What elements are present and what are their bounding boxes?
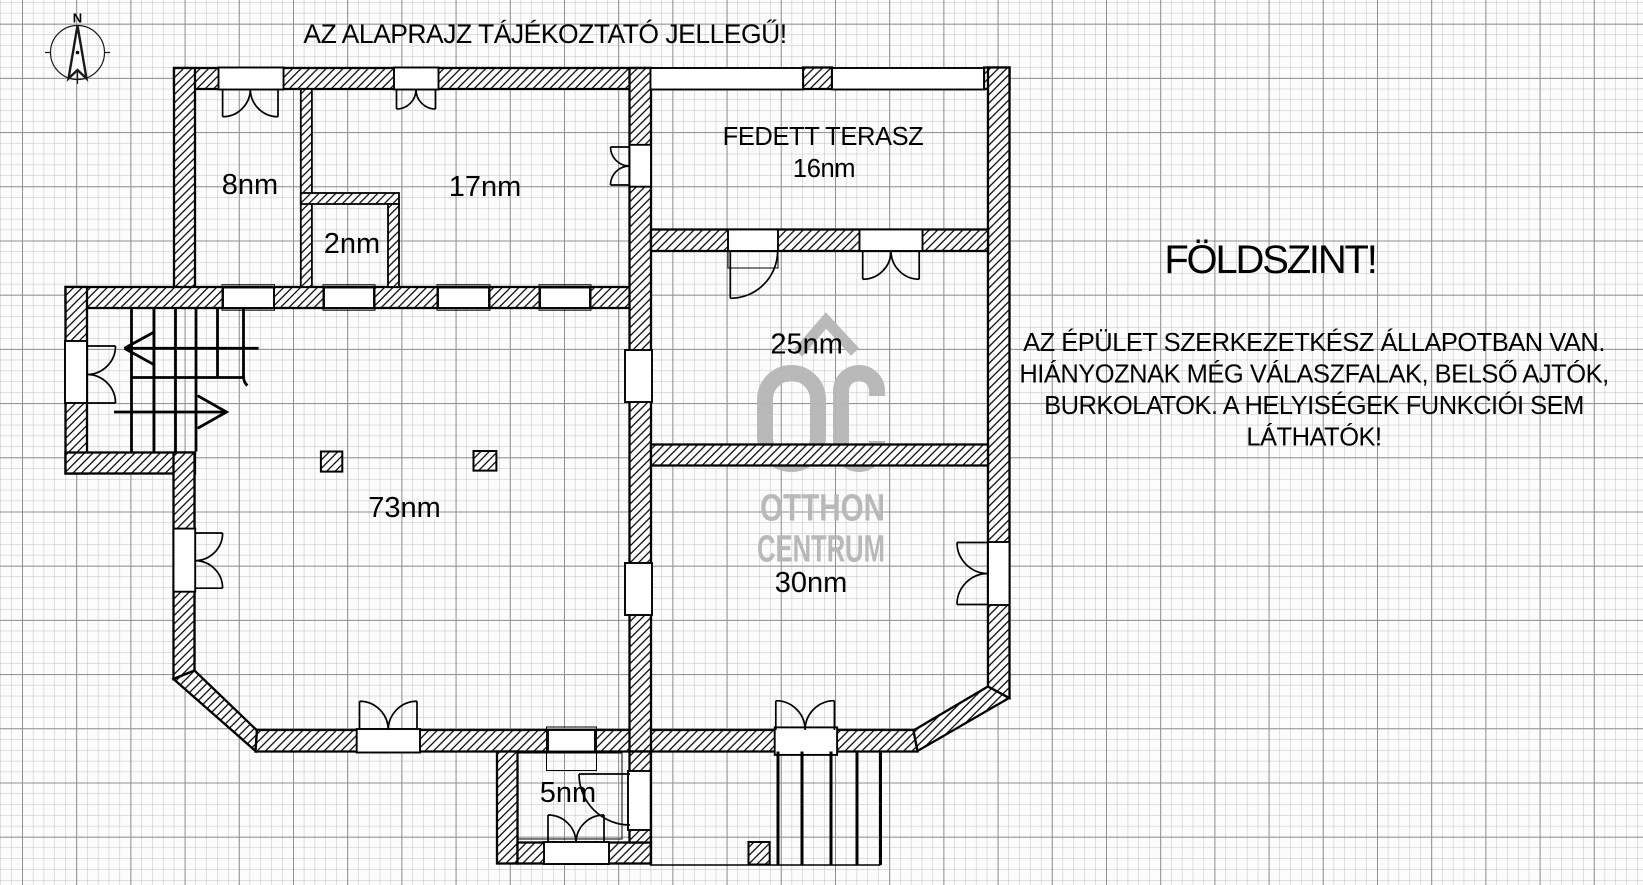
svg-text:AZ ÉPÜLET SZERKEZETKÉSZ ÁLLAPO: AZ ÉPÜLET SZERKEZETKÉSZ ÁLLAPOTBAN VAN. bbox=[1023, 328, 1605, 357]
svg-text:FÖLDSZINT!: FÖLDSZINT! bbox=[1164, 238, 1375, 282]
svg-text:LÁTHATÓK!: LÁTHATÓK! bbox=[1246, 423, 1381, 452]
svg-text:2nm: 2nm bbox=[324, 228, 380, 260]
svg-text:FEDETT TERASZ: FEDETT TERASZ bbox=[723, 123, 924, 151]
svg-text:5nm: 5nm bbox=[540, 777, 596, 809]
svg-text:25nm: 25nm bbox=[770, 329, 843, 361]
svg-text:17nm: 17nm bbox=[449, 171, 522, 203]
svg-text:AZ ALAPRAJZ TÁJÉKOZTATÓ JELLEG: AZ ALAPRAJZ TÁJÉKOZTATÓ JELLEGŰ! bbox=[303, 19, 786, 49]
svg-text:30nm: 30nm bbox=[775, 567, 848, 599]
svg-text:N: N bbox=[73, 11, 82, 26]
svg-text:16nm: 16nm bbox=[793, 155, 855, 183]
svg-text:CENTRUM: CENTRUM bbox=[757, 529, 885, 571]
svg-text:OTTHON: OTTHON bbox=[760, 488, 885, 530]
svg-text:8nm: 8nm bbox=[222, 169, 278, 201]
svg-text:BURKOLATOK. A HELYISÉGEK FUNKC: BURKOLATOK. A HELYISÉGEK FUNKCIÓI SEM bbox=[1044, 391, 1584, 420]
svg-text:73nm: 73nm bbox=[368, 492, 441, 524]
svg-text:HIÁNYOZNAK MÉG VÁLASZFALAK, BE: HIÁNYOZNAK MÉG VÁLASZFALAK, BELSŐ AJTÓK, bbox=[1019, 360, 1608, 389]
